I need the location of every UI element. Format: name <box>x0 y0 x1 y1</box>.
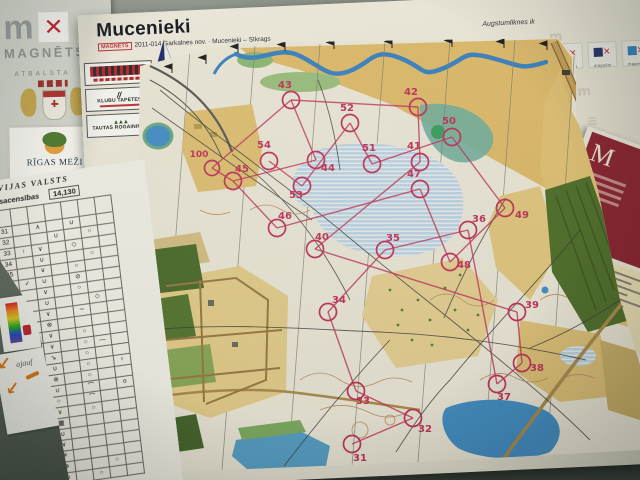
compass-diamond-logo <box>151 37 179 92</box>
star-icon <box>500 60 544 104</box>
watermark-letter: m <box>577 84 591 100</box>
m-letter-icon: m <box>3 13 32 44</box>
riga-coat-of-arms <box>20 79 87 121</box>
watermark-letter: m <box>549 29 563 45</box>
atbalsta-label: ATBALSTA <box>0 69 93 79</box>
mini-logo: ✕ magnēts <box>553 42 583 69</box>
magnets-star-icon: ✕ <box>37 11 70 44</box>
dash-icon <box>25 371 39 381</box>
rainbow-strip-icon <box>5 302 22 343</box>
sponsor-box-klubu-tapetes: // KLUBU TAPETES <box>85 86 154 112</box>
elevation-note: Augstumlīknes ik <box>482 13 640 28</box>
tree-icon <box>41 132 67 154</box>
red-mark-icon <box>22 324 31 335</box>
mini-logo: ✕ magnēts <box>587 41 617 68</box>
arrow-icon: ↙ <box>4 378 21 399</box>
lion-icon <box>20 88 37 116</box>
club-star-logo: magnēts <box>494 58 552 118</box>
swoosh-icon <box>100 103 140 107</box>
mini-logo-row: ✕ magnēts ✕ magnēts ✕ magnēts <box>553 39 640 69</box>
distance-value: 14,130 <box>48 184 80 199</box>
mini-logo: ✕ magnēts <box>621 39 640 66</box>
shield-icon <box>42 90 67 121</box>
issue-tag: MAGNĒTS <box>98 42 132 52</box>
photo-of-orienteering-map: m ✕ MAGNĒTS ATBALSTA RĪGAS MEŽI M Muceni… <box>0 0 640 480</box>
handwritten-note: ajauf <box>15 357 33 369</box>
arrow-icon: ↙ <box>0 353 13 374</box>
sponsor-logo-column: // KLUBU TAPETES ▲▲▲ TAUTAS ROGAININGS <box>84 60 155 141</box>
checkered-pattern-icon <box>90 64 146 77</box>
sponsor-box-checkered <box>84 60 153 86</box>
star-logo-label: magnēts <box>501 104 551 116</box>
sponsor-box-tautas-rogainings: ▲▲▲ TAUTAS ROGAININGS <box>86 112 155 138</box>
arms-wall-icon <box>38 80 68 88</box>
map-title: Mucenieki <box>96 16 191 42</box>
